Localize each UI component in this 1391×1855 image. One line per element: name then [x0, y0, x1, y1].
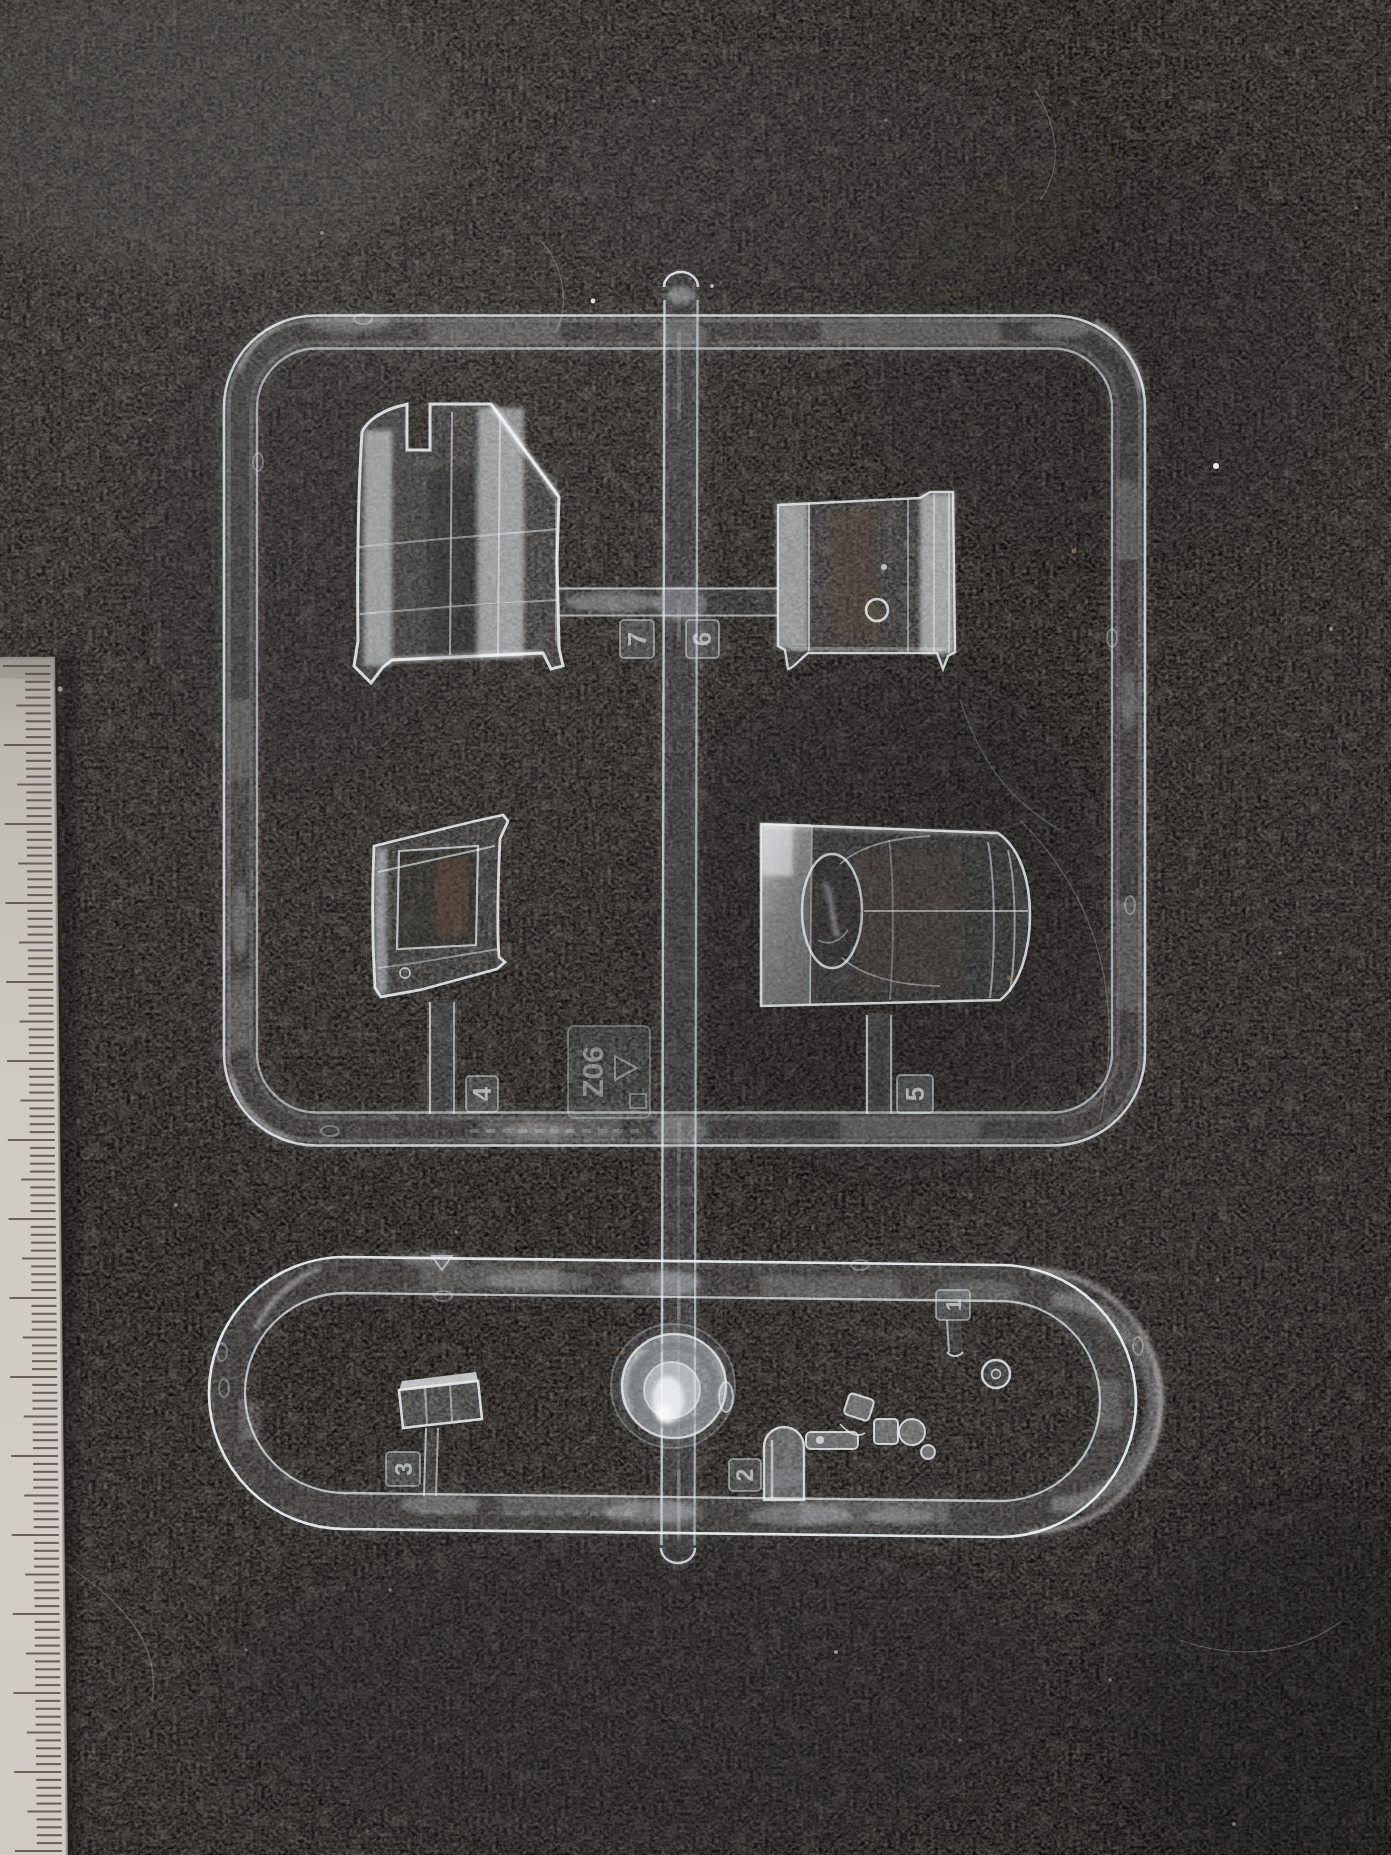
svg-text:3: 3	[390, 1462, 417, 1475]
svg-text:7: 7	[622, 632, 652, 646]
svg-text:5: 5	[900, 1087, 930, 1101]
svg-text:6: 6	[687, 632, 717, 646]
svg-text:1: 1	[941, 1299, 966, 1311]
svg-text:Z06: Z06	[576, 1046, 609, 1098]
svg-text:4: 4	[467, 1086, 497, 1101]
svg-text:2: 2	[732, 1469, 758, 1482]
